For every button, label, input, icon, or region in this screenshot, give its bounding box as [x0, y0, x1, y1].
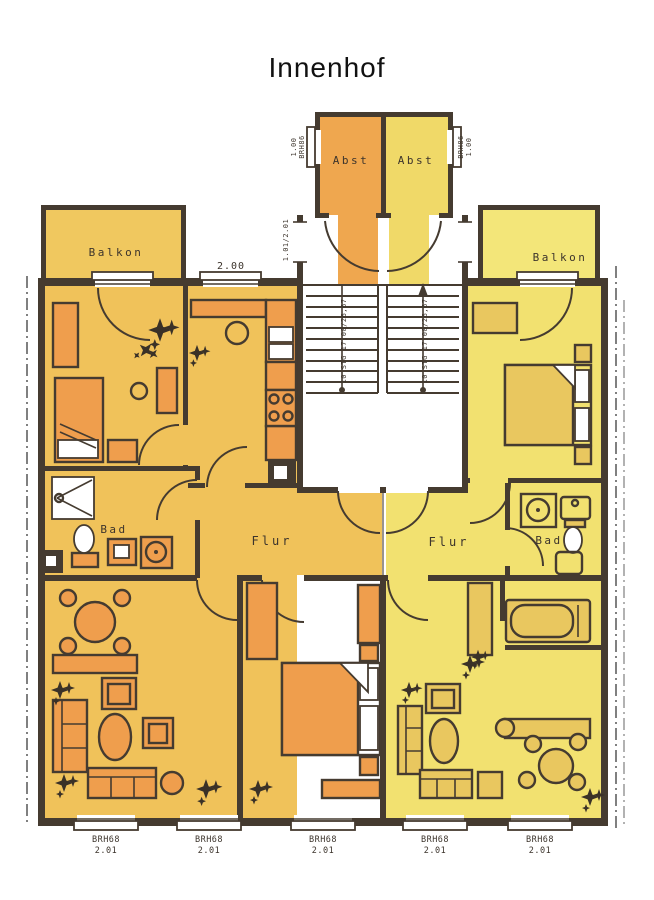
label-flur-left: Flur: [252, 534, 293, 548]
wardrobe-bedroom-right: [473, 303, 517, 333]
side-table-right: [478, 772, 502, 798]
sideboard-left: [53, 655, 137, 673]
wall-stair-bottom-b: [428, 487, 468, 493]
stove: [266, 390, 296, 426]
wall-kitchen-bottom-a: [188, 483, 205, 488]
window-label-size: 2.01: [529, 846, 551, 856]
wall-bad-right-side-b: [505, 566, 510, 575]
wall-bad-left-side-a: [195, 466, 200, 480]
window-label-size: 2.01: [198, 846, 220, 856]
abst-right-corridor: [389, 215, 429, 285]
window-label-code: BRH68: [309, 835, 337, 845]
label-bad-left: Bad: [100, 523, 127, 536]
wall-bad-left-side-b: [195, 520, 200, 578]
coffee-table-left: [99, 714, 131, 760]
window-label-code: BRH68: [526, 835, 554, 845]
walkline-start-dot-right: [420, 387, 426, 393]
wall-outer-right: [601, 278, 608, 825]
label-abst-window-height-right: 1.00: [465, 138, 473, 157]
label-abst-window-height-left: 1.00: [290, 138, 298, 157]
wall-tub-nook-bottom: [505, 645, 601, 650]
nightstand-middle-bottom: [360, 757, 378, 775]
porch-door-right: [458, 222, 472, 262]
sink-left: [108, 539, 136, 565]
wall-party-flur: [382, 493, 384, 577]
wall-balcony-left-t: [41, 205, 186, 210]
label-balkon-left: Balkon: [89, 246, 144, 259]
bench-bedroom-middle: [322, 780, 380, 798]
window-label-size: 2.01: [95, 846, 117, 856]
wall-bad-left-top: [42, 466, 200, 471]
label-abst-window-code-right: BRH86: [457, 135, 465, 159]
label-abst-window-code-left: BRH86: [298, 135, 306, 159]
balcony-door-left-opening: [92, 272, 153, 287]
wall-bedroom-kitchen-a: [183, 285, 188, 425]
window-bottom-4: [403, 815, 467, 830]
sofa-left-bottom: [88, 768, 156, 798]
window-bottom-2: [177, 815, 241, 830]
floorplan-canvas: Innenhof: [0, 0, 654, 900]
room-balkon-left: [46, 210, 181, 278]
shower: [52, 477, 94, 519]
dim-kitchen-window: 2.00: [217, 261, 245, 272]
label-balkon-right: Balkon: [533, 251, 588, 264]
bed-bedroom-middle: [282, 663, 380, 755]
sofa-right-vertical: [398, 706, 422, 774]
walkline-start-dot-left: [339, 387, 345, 393]
abst-window-left: [307, 127, 321, 167]
tall-wardrobe-living-right: [468, 583, 492, 655]
window-bottom-3: [291, 815, 355, 830]
armchair-left-2: [143, 718, 173, 748]
stair-annotation-right: 10 STG 17,00/26,67: [421, 299, 429, 384]
room-balkon-right: [483, 210, 595, 278]
sofa-right-bottom: [420, 770, 472, 798]
wall-tub-nook-left: [500, 581, 505, 621]
balcony-door-right-opening: [517, 272, 578, 287]
window-label-code: BRH68: [92, 835, 120, 845]
flue-block: [40, 550, 63, 573]
wall-balcony-right-t: [478, 205, 600, 210]
washing-machine-left: [141, 537, 172, 568]
coffee-table-right: [430, 719, 458, 763]
kitchen-sink-unit: [268, 460, 296, 487]
nightstand-middle-top: [360, 645, 378, 661]
wardrobe-bedroom-middle: [247, 583, 277, 659]
wall-annex-party: [381, 112, 386, 218]
wall-mid-band-a: [42, 575, 197, 581]
wall-balcony-right-r: [595, 205, 600, 278]
wall-bedroom-right-bottom-a: [462, 478, 470, 483]
wall-mid-band-c: [304, 575, 388, 581]
wall-bad-right-side-a: [505, 483, 510, 530]
label-bad-right: Bad: [535, 534, 562, 547]
wall-annex-stub-left: [315, 213, 329, 218]
nightstand-right-top: [575, 345, 591, 362]
wall-stair-right: [462, 281, 468, 493]
bed-bedroom-left: [55, 378, 103, 462]
wall-stair-left: [297, 281, 303, 493]
wall-balcony-right-l: [478, 205, 483, 278]
bench-bedroom-left: [108, 440, 137, 462]
wall-balcony-left-l: [41, 205, 46, 278]
wall-stair-bottom-post: [380, 487, 386, 493]
wall-annex-stub-center: [376, 213, 391, 218]
window-label-code: BRH68: [421, 835, 449, 845]
wall-annex-stub-right: [439, 213, 453, 218]
label-abst-right: Abst: [398, 154, 435, 167]
stair-annotation-left: 10 STG 17,00/26,67: [340, 299, 348, 384]
wall-outer-top-left: [38, 278, 303, 286]
dim-entry-door: 1.01/2.01: [282, 219, 290, 261]
wall-bedroom-right-bottom-b: [508, 478, 601, 483]
window-bottom-1: [74, 815, 138, 830]
window-bottom-5: [508, 815, 572, 830]
label-flur-right: Flur: [429, 535, 470, 549]
wall-living-bedroom-left: [237, 575, 243, 818]
nightstand-right-bottom: [575, 447, 591, 464]
window-label-code: BRH68: [195, 835, 223, 845]
wall-mid-band-d: [428, 575, 601, 581]
window-label-size: 2.01: [312, 846, 334, 856]
porch-door-left: [293, 222, 307, 262]
cabinet-bedroom-left: [157, 368, 177, 413]
sofa-left-vertical: [53, 700, 87, 772]
wall-stair-bottom-a: [297, 487, 338, 493]
cabinet-bedroom-middle: [358, 585, 380, 643]
kitchen-window-opening: [200, 272, 261, 287]
wardrobe-bedroom-left: [53, 303, 78, 367]
label-abst-left: Abst: [333, 154, 370, 167]
wall-balcony-left-r: [181, 205, 186, 278]
armchair-right: [426, 684, 460, 713]
bathtub: [506, 600, 590, 642]
stool-living-left: [161, 772, 183, 794]
floorplan-drawing: 10 STG 17,00/26,67 10 STG 17,00/26,67: [0, 0, 654, 900]
armchair-left-1: [102, 678, 136, 709]
abst-left-corridor: [338, 215, 378, 285]
window-label-size: 2.01: [424, 846, 446, 856]
